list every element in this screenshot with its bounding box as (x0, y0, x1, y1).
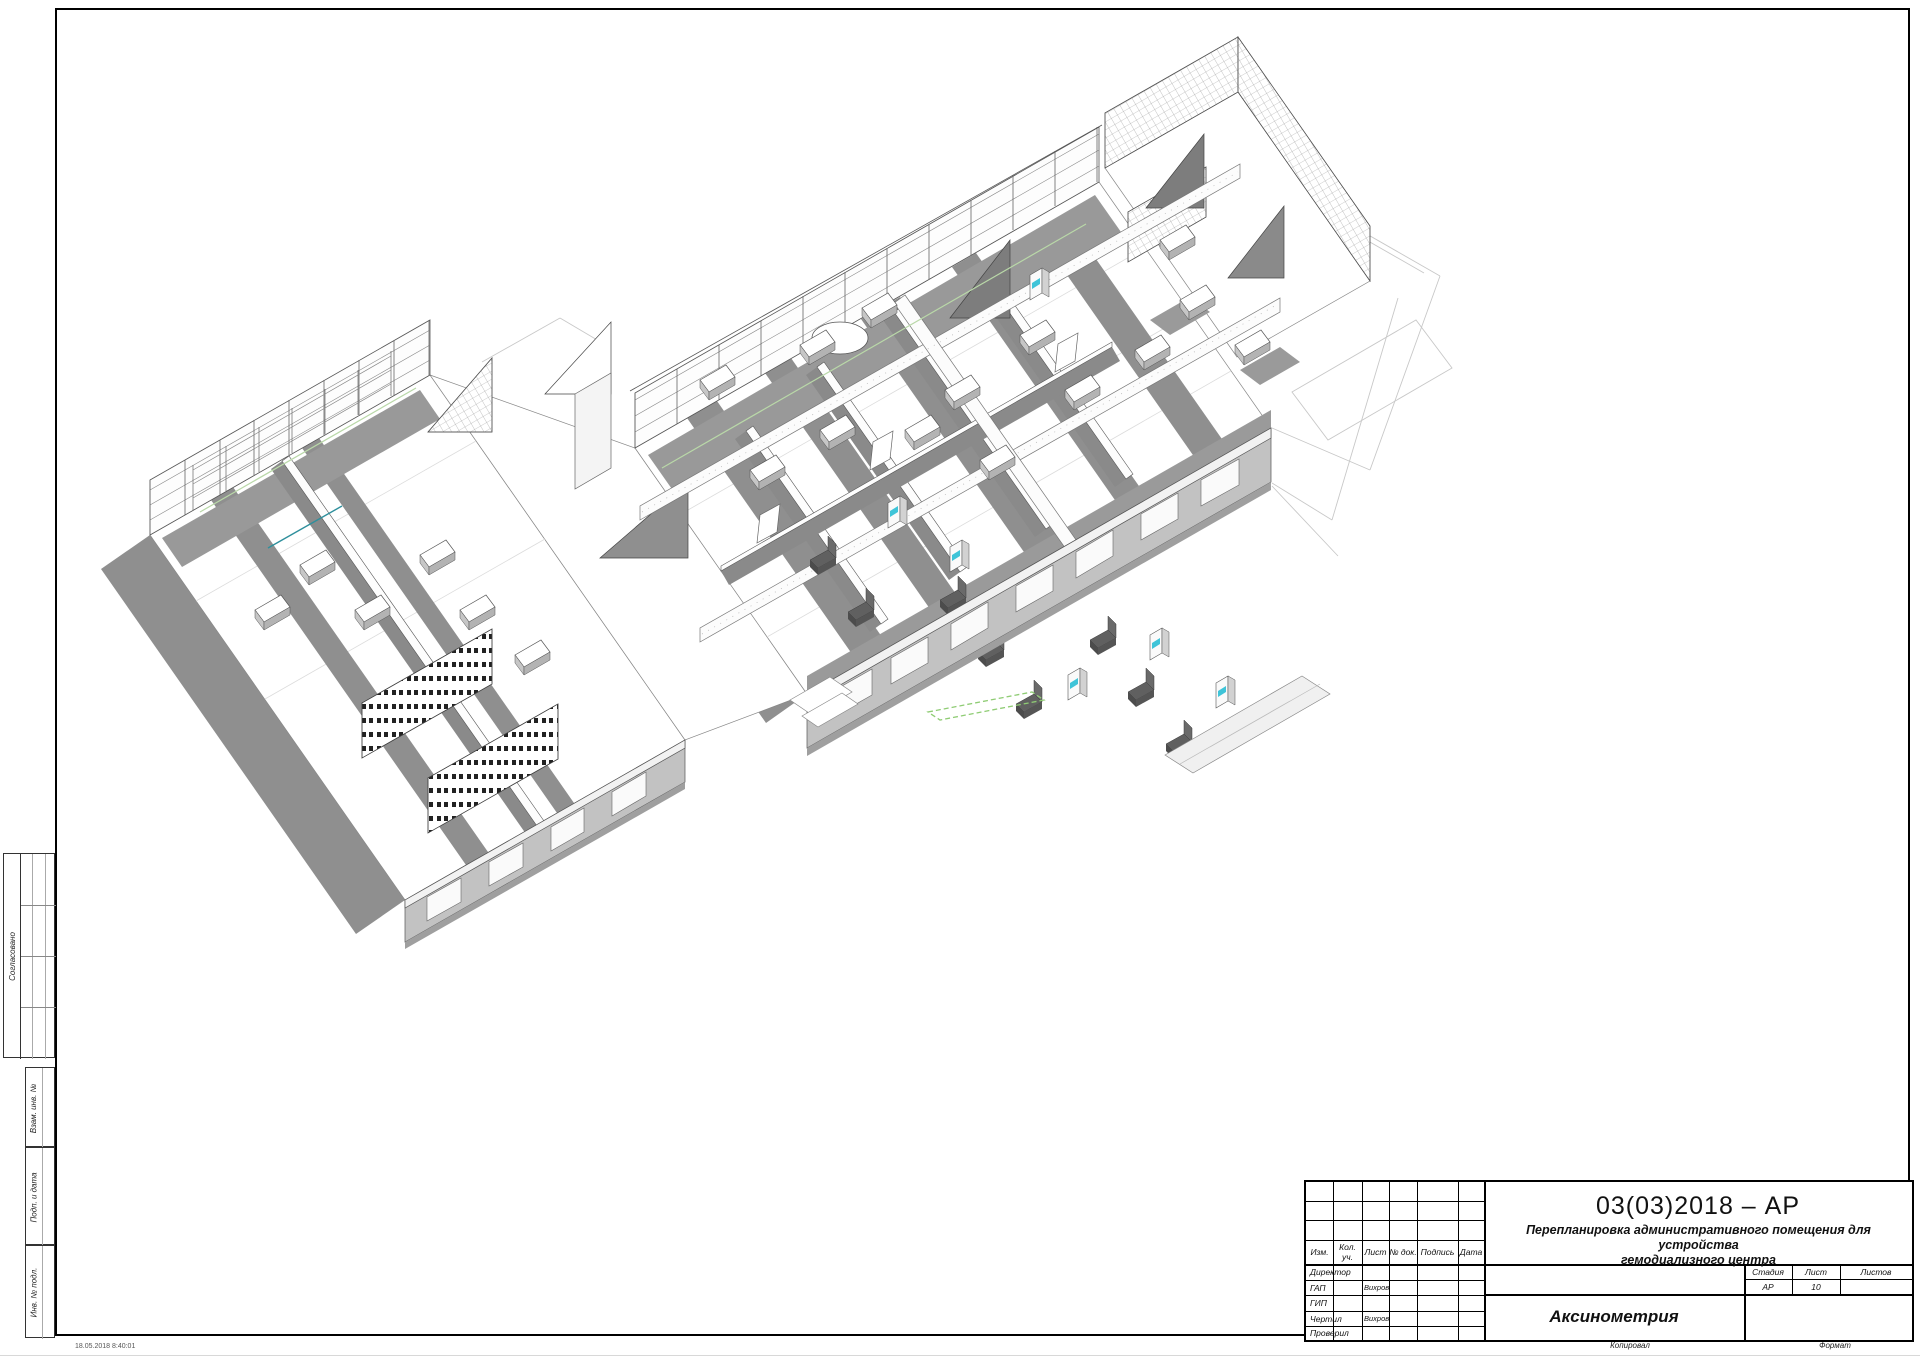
sheet-label: Лист (1792, 1264, 1840, 1279)
margin-box-approved: Согласовано (3, 853, 55, 1058)
rev-header-ndok: № док. (1389, 1240, 1417, 1264)
signer-role-drawn: Чертил (1310, 1311, 1360, 1326)
sheets-value (1840, 1279, 1912, 1294)
signer-role-gip: ГИП (1310, 1295, 1360, 1311)
sheet-value: 10 (1792, 1279, 1840, 1294)
print-timestamp: 18.05.2018 8:40:01 (75, 1343, 135, 1350)
margin-box-inv-orig: Инв. № подл. (25, 1245, 55, 1338)
signer-role-checked: Проверил (1310, 1326, 1360, 1340)
rev-header-izm: Изм. (1306, 1240, 1333, 1264)
signer-name-drawn: Вихров (1364, 1311, 1414, 1326)
margin-box-sign-date: Подп. и дата (25, 1147, 55, 1245)
stage-value: АР (1744, 1279, 1792, 1294)
margin-label-approved: Согласовано (8, 932, 17, 981)
margin-label-subst-inv: Взам. инв. № (30, 1083, 39, 1132)
rev-header-data: Дата (1458, 1240, 1484, 1264)
footer-format: Формат (1790, 1341, 1880, 1350)
footer-copied-by: Копировал (1560, 1341, 1700, 1350)
stage-label: Стадия (1744, 1264, 1792, 1279)
margin-label-inv-orig: Инв. № подл. (30, 1268, 39, 1318)
margin-label-sign-date: Подп. и дата (30, 1172, 39, 1222)
sheet-frame (55, 8, 1910, 1336)
page-edge (0, 1355, 1920, 1356)
margin-box-subst-inv: Взам. инв. № (25, 1067, 55, 1147)
signer-name-gap: Вихров (1364, 1280, 1414, 1295)
sheets-label: Листов (1840, 1264, 1912, 1279)
doc-code: 03(03)2018 – АР (1484, 1184, 1912, 1228)
rev-header-list: Лист (1362, 1240, 1389, 1264)
project-name-line1: Перепланировка административного помещен… (1491, 1223, 1906, 1253)
title-block: Изм. Кол. уч. Лист № док. Подпись Дата Д… (1304, 1180, 1914, 1342)
signer-role-director: Директор (1310, 1264, 1360, 1280)
view-name: Аксинометрия (1484, 1294, 1744, 1340)
rev-header-koluch: Кол. уч. (1333, 1240, 1362, 1264)
rev-header-podpis: Подпись (1417, 1240, 1458, 1264)
signer-role-gap: ГАП (1310, 1280, 1360, 1295)
drawing-sheet: Согласовано Взам. инв. № Подп. и дата Ин… (0, 0, 1920, 1358)
